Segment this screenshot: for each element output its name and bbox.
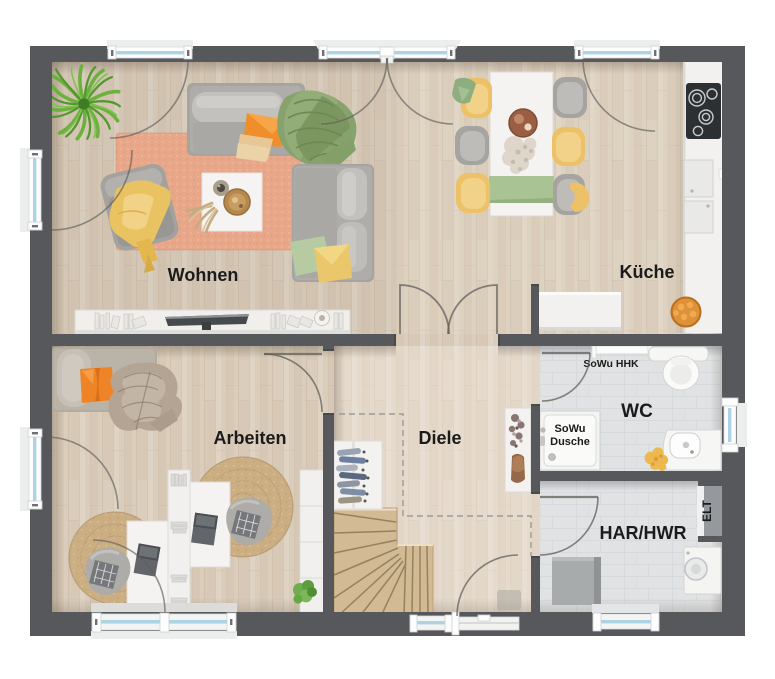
svg-text:Küche: Küche <box>619 262 674 282</box>
svg-text:WC: WC <box>621 401 653 422</box>
svg-text:SoWu: SoWu <box>555 423 586 435</box>
svg-text:HAR/HWR: HAR/HWR <box>600 523 687 543</box>
svg-text:Arbeiten: Arbeiten <box>213 428 286 448</box>
svg-text:Wohnen: Wohnen <box>168 265 239 285</box>
svg-text:ELT: ELT <box>700 499 714 521</box>
svg-text:Diele: Diele <box>418 428 461 448</box>
svg-text:Dusche: Dusche <box>550 436 590 448</box>
svg-text:SoWu HHK: SoWu HHK <box>583 358 639 370</box>
